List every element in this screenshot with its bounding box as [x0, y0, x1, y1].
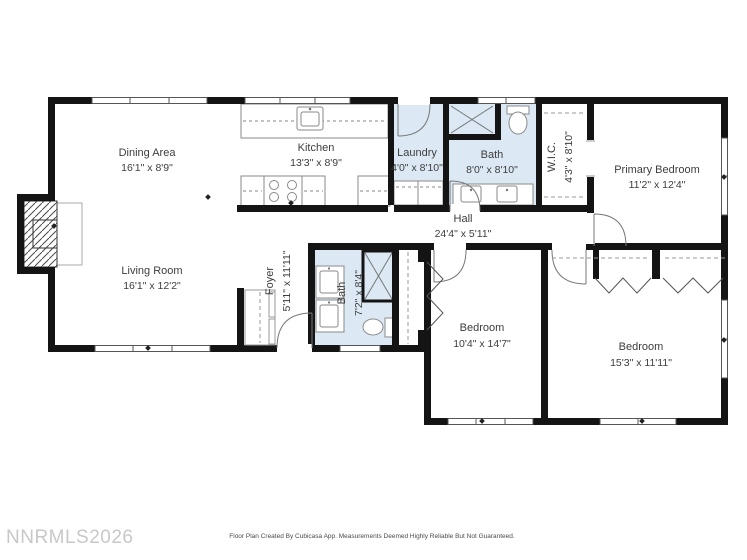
- room-dims-primary: 11'2" x 12'4": [629, 179, 686, 191]
- room-dims-bedroom-right: 15'3" x 11'11": [610, 357, 672, 369]
- room-dims-bath-bottom: 7'2" x 8'4": [353, 270, 365, 316]
- room-label-bedroom-mid: Bedroom: [460, 322, 505, 334]
- room-label-laundry: Laundry: [397, 147, 437, 159]
- room-dims-bath-top: 8'0" x 8'10": [466, 164, 518, 176]
- bifold-door-icon: [663, 278, 723, 293]
- door-icon: [552, 250, 586, 284]
- floor-plan-page: Dining Area 16'1" x 8'9" Kitchen 13'3" x…: [0, 0, 747, 560]
- room-dims-kitchen: 13'3" x 8'9": [290, 157, 342, 169]
- laundry-fixtures: [394, 181, 443, 205]
- room-label-dining: Dining Area: [119, 147, 177, 159]
- door-icon: [594, 214, 626, 246]
- footer-disclaimer: Floor Plan Created By Cubicasa App. Meas…: [229, 533, 515, 540]
- bifold-door-icon: [595, 278, 651, 293]
- room-label-primary: Primary Bedroom: [614, 164, 700, 176]
- door-icon: [434, 250, 466, 282]
- room-label-foyer: Foyer: [264, 267, 276, 295]
- floor-plan: Dining Area 16'1" x 8'9" Kitchen 13'3" x…: [0, 0, 747, 560]
- window-icon: [245, 98, 350, 104]
- watermark: NNRMLS2026: [6, 527, 134, 548]
- room-label-bedroom-right: Bedroom: [619, 341, 664, 353]
- kitchen-fixtures: [241, 104, 390, 206]
- room-label-bath-top: Bath: [481, 149, 504, 161]
- room-dims-foyer: 5'11" x 11'11": [281, 250, 293, 311]
- room-label-living: Living Room: [121, 265, 182, 277]
- room-dims-wic: 4'3" x 8'10": [563, 131, 575, 183]
- room-dims-laundry: 4'0" x 8'10": [391, 162, 443, 174]
- window-icon: [448, 419, 533, 425]
- room-label-kitchen: Kitchen: [298, 142, 335, 154]
- room-dims-living: 16'1" x 12'2": [123, 280, 181, 292]
- room-label-bath-bottom: Bath: [336, 282, 348, 305]
- window-icon: [95, 346, 210, 352]
- stove-icon: [264, 176, 302, 206]
- room-label-wic: W.I.C.: [546, 142, 558, 172]
- room-dims-bedroom-mid: 10'4" x 14'7": [453, 338, 511, 350]
- door-icon: [277, 313, 312, 348]
- room-dims-hall: 24'4" x 5'11": [435, 228, 492, 240]
- room-label-hall: Hall: [454, 213, 473, 225]
- window-icon: [92, 98, 207, 104]
- window-icon: [340, 346, 380, 352]
- fireplace-icon: [24, 201, 82, 267]
- room-dims-dining: 16'1" x 8'9": [121, 162, 173, 174]
